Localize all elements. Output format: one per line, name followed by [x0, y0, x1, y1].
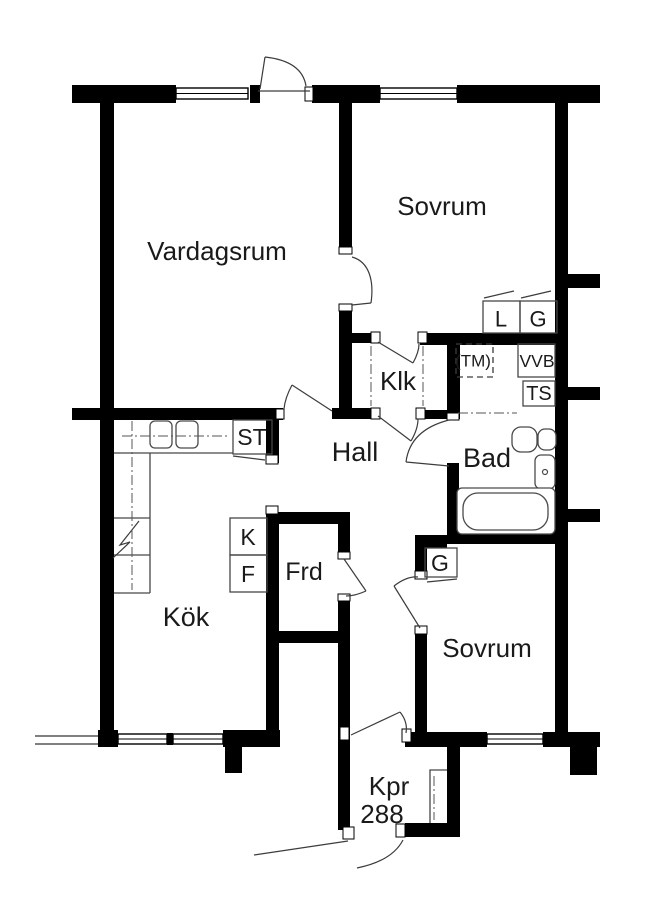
apartment-number: 288 — [360, 799, 403, 829]
room-label-kpr: Kpr — [369, 771, 410, 801]
room-label-vardagsrum: Vardagsrum — [147, 236, 287, 266]
room-label-frd: Frd — [285, 558, 323, 586]
room-label-bad: Bad — [463, 443, 511, 473]
door-hall-kpr — [351, 712, 406, 735]
toilet-icon — [535, 455, 555, 489]
balcony-door — [258, 57, 310, 91]
door-hall-vardagsrum — [284, 385, 332, 411]
door-frd — [344, 559, 366, 596]
entrance-door — [254, 840, 403, 868]
label-st: ST — [237, 424, 266, 450]
bathtub-icon — [457, 488, 555, 534]
room-label-sovrum-2: Sovrum — [442, 633, 532, 663]
neighbour-window-lines — [35, 736, 98, 744]
stove-icon — [113, 521, 139, 558]
washbasin-icon — [512, 427, 537, 452]
door-hall-bad — [406, 420, 449, 466]
room-label-hall: Hall — [332, 437, 379, 467]
label-vvb: VVB — [519, 351, 554, 371]
washbasin-icon-2 — [538, 429, 556, 450]
label-closet-l: L — [495, 307, 507, 332]
kitchen-sink-icon-2 — [176, 421, 198, 448]
door-vardagsrum-sovrum — [352, 257, 372, 305]
label-tm: (TM) — [455, 352, 491, 371]
window-kok-1 — [118, 734, 167, 744]
label-closet-g-bottom: G — [431, 550, 449, 576]
label-closet-g-top: G — [529, 307, 546, 332]
label-ts: TS — [526, 383, 552, 405]
label-kyl: K — [240, 524, 256, 550]
room-label-kok: Kök — [163, 602, 210, 632]
window-sovrum-bottom — [487, 734, 543, 744]
floor-plan-drawing: Vardagsrum Sovrum Klk Hall Bad Kök Frd S… — [0, 0, 672, 900]
window-sovrum-top — [380, 88, 457, 99]
kitchen-sink-icon — [150, 421, 172, 448]
label-frys: F — [241, 561, 255, 587]
window-kok-2 — [173, 734, 223, 744]
kitchen-fixtures — [113, 421, 233, 593]
floor-plan-page: Vardagsrum Sovrum Klk Hall Bad Kök Frd S… — [0, 0, 672, 900]
window-vardagsrum — [176, 88, 248, 99]
door-hall-sovrum2 — [394, 577, 420, 628]
room-label-sovrum-1: Sovrum — [397, 191, 487, 221]
door-hall-klk — [378, 416, 418, 441]
room-label-klk: Klk — [380, 366, 417, 396]
kpr-wardrobe — [430, 770, 447, 823]
door-sovrum-klk — [378, 342, 419, 363]
